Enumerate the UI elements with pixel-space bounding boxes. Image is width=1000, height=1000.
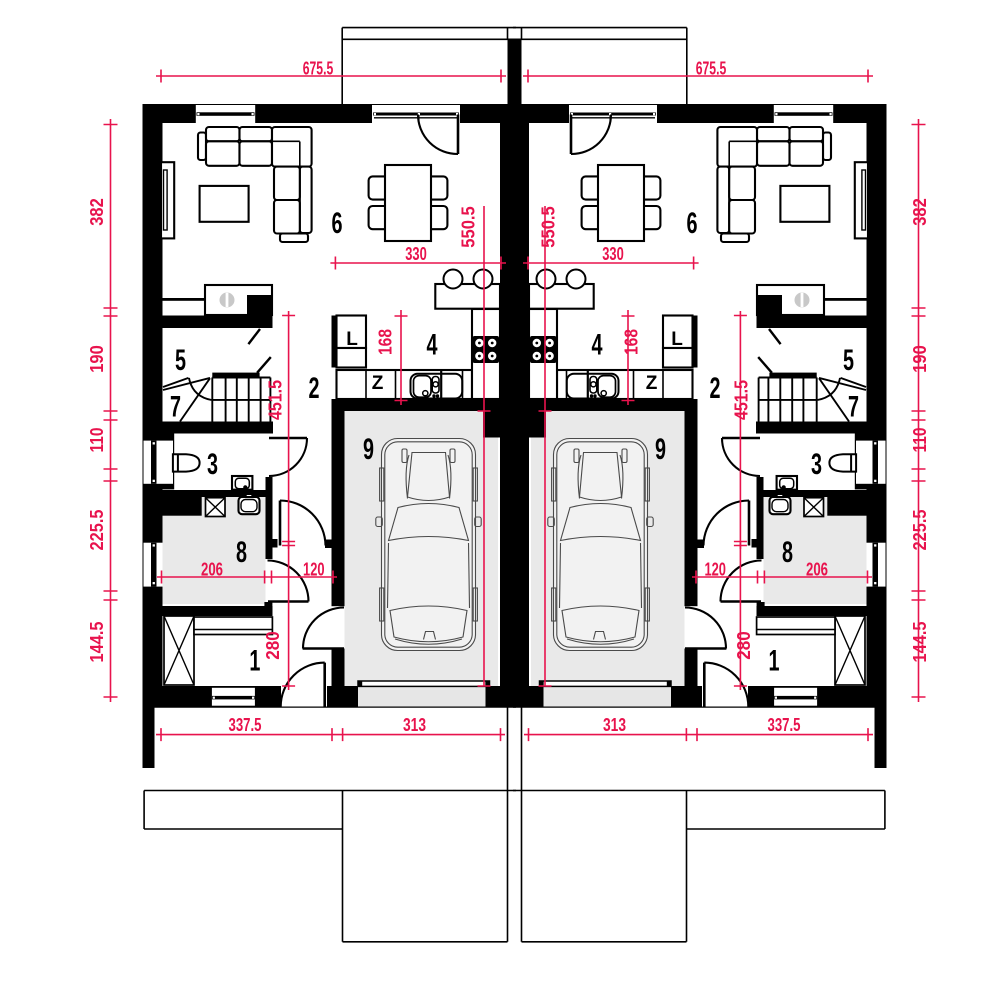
svg-text:313: 313 xyxy=(603,715,626,735)
svg-text:313: 313 xyxy=(403,715,426,735)
svg-text:168: 168 xyxy=(622,329,642,355)
svg-text:2: 2 xyxy=(309,372,320,405)
svg-text:225.5: 225.5 xyxy=(910,510,930,551)
svg-text:2: 2 xyxy=(710,372,721,405)
svg-text:9: 9 xyxy=(363,433,374,466)
svg-text:382: 382 xyxy=(910,198,930,226)
svg-text:190: 190 xyxy=(87,345,107,373)
svg-text:675.5: 675.5 xyxy=(303,59,334,79)
svg-text:337.5: 337.5 xyxy=(768,715,801,735)
svg-text:337.5: 337.5 xyxy=(229,715,262,735)
svg-text:206: 206 xyxy=(806,560,828,580)
svg-text:3: 3 xyxy=(811,448,822,481)
svg-text:9: 9 xyxy=(655,433,666,466)
svg-text:5: 5 xyxy=(175,344,186,377)
svg-text:330: 330 xyxy=(602,244,624,264)
svg-text:382: 382 xyxy=(87,198,107,226)
svg-text:8: 8 xyxy=(236,536,247,569)
svg-text:110: 110 xyxy=(87,428,107,453)
svg-text:280: 280 xyxy=(734,631,754,660)
svg-text:110: 110 xyxy=(910,428,930,453)
svg-text:144.5: 144.5 xyxy=(910,622,930,663)
svg-text:550.5: 550.5 xyxy=(539,206,559,248)
svg-text:120: 120 xyxy=(303,560,325,580)
svg-text:7: 7 xyxy=(848,391,859,424)
svg-text:6: 6 xyxy=(687,207,698,240)
svg-text:550.5: 550.5 xyxy=(459,206,479,248)
svg-text:190: 190 xyxy=(910,345,930,373)
svg-text:225.5: 225.5 xyxy=(87,510,107,551)
svg-text:3: 3 xyxy=(207,448,218,481)
svg-text:6: 6 xyxy=(332,207,343,240)
svg-text:7: 7 xyxy=(170,391,181,424)
svg-text:280: 280 xyxy=(263,631,283,660)
svg-text:330: 330 xyxy=(405,244,427,264)
svg-text:168: 168 xyxy=(376,329,396,355)
svg-text:Z: Z xyxy=(372,373,384,394)
svg-text:144.5: 144.5 xyxy=(87,622,107,663)
svg-text:4: 4 xyxy=(427,329,438,362)
svg-text:451.5: 451.5 xyxy=(266,380,286,420)
svg-text:675.5: 675.5 xyxy=(696,59,727,79)
svg-text:8: 8 xyxy=(782,536,793,569)
svg-text:120: 120 xyxy=(704,560,726,580)
svg-text:L: L xyxy=(346,329,358,350)
svg-text:5: 5 xyxy=(843,344,854,377)
svg-text:L: L xyxy=(671,329,683,350)
svg-text:206: 206 xyxy=(201,560,223,580)
svg-text:451.5: 451.5 xyxy=(732,380,752,420)
svg-text:4: 4 xyxy=(592,329,603,362)
svg-text:1: 1 xyxy=(249,645,260,678)
svg-text:Z: Z xyxy=(646,373,658,394)
svg-text:1: 1 xyxy=(769,645,780,678)
